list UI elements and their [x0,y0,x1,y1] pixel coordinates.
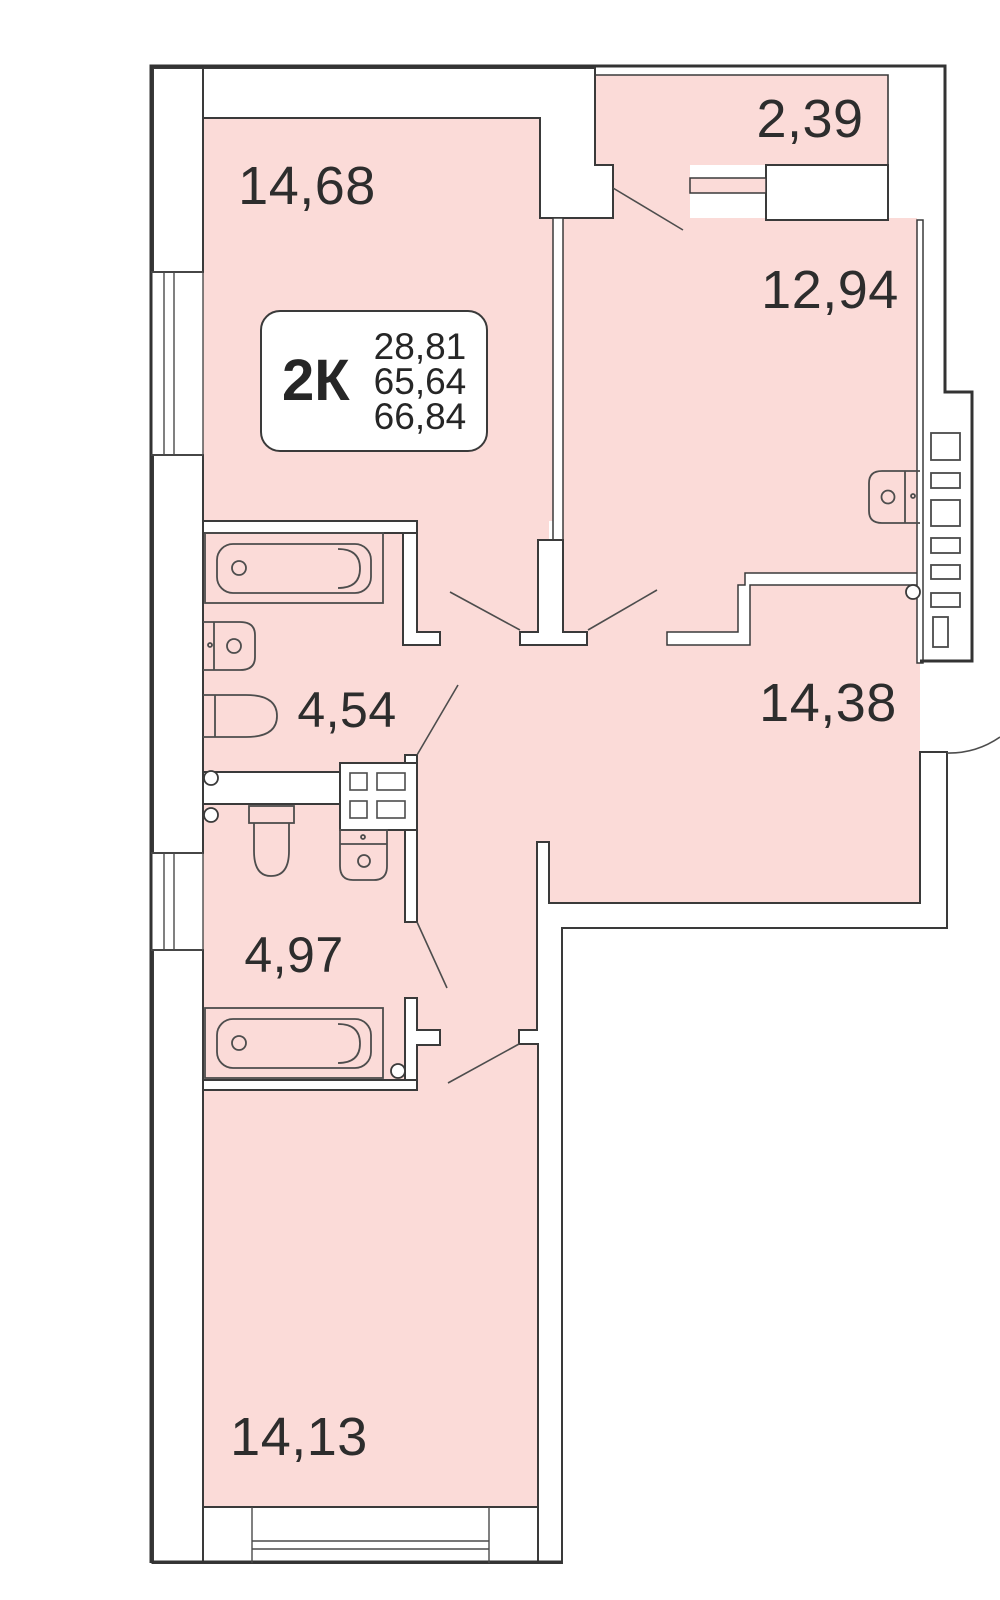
wall-left-lower [153,950,203,1563]
entrance-door-arc [947,737,1000,753]
wall-bottom [203,1507,562,1563]
wall-left-upper [153,68,203,272]
riser-icon [204,771,218,785]
area-label-living-room: 14,13 [230,1406,368,1468]
unit-type-label: 2К [282,352,350,410]
area-label-bathroom: 4,54 [297,681,396,739]
unit-area-main: 65,64 [374,364,467,399]
area-label-wc: 4,97 [244,926,343,984]
wall-wc-livingroom [203,1080,417,1090]
area-label-hall: 14,38 [759,672,897,734]
unit-info-card: 2К 28,81 65,64 66,84 [260,310,488,452]
wall-balcony-block [766,165,888,220]
wall-left-middle [153,455,203,853]
window-wc [151,853,203,950]
ventilation-shaft [931,433,960,647]
unit-area-total: 66,84 [374,399,467,434]
riser-icon [204,808,218,822]
shaft-cell-icon [931,473,960,488]
wall-bedroom-kitchen [553,218,563,540]
unit-living-area: 28,81 [374,329,467,364]
area-label-balcony: 2,39 [756,88,863,150]
area-label-bedroom: 14,68 [238,155,376,217]
shaft-cell-icon [933,617,948,647]
shaft-cell-icon [931,593,960,607]
shaft-cell-icon [931,500,960,526]
shaft-cell-icon [931,538,960,553]
riser-icon [391,1064,405,1078]
unit-areas: 28,81 65,64 66,84 [374,329,467,434]
wall-bathroom-wc [203,772,340,804]
floor-plan: 14,68 2,39 12,94 4,54 14,38 4,97 14,13 2… [0,0,1000,1600]
shaft-cell-icon [931,433,960,460]
wall-bathroom-top [203,521,417,533]
floor-plan-drawing [0,0,1000,1600]
window-bedroom [151,272,203,455]
riser-icon [906,585,920,599]
area-label-kitchen: 12,94 [761,259,899,321]
shaft-cell-icon [931,565,960,579]
balcony-window-unit [690,178,766,193]
stove-block [340,763,417,830]
